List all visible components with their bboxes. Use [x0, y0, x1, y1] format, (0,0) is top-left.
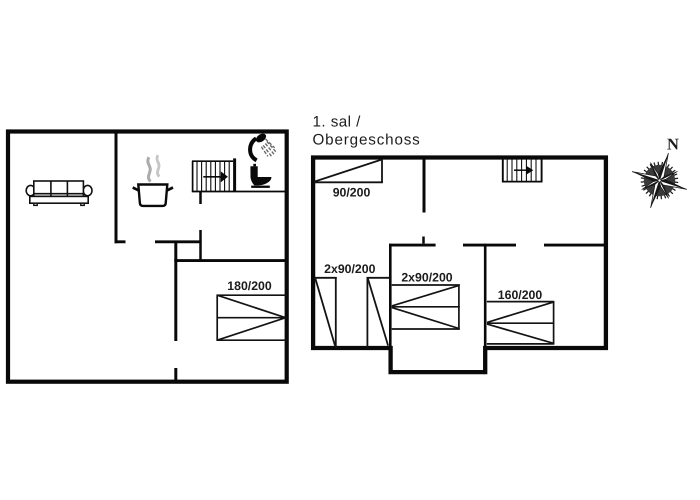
svg-text:1. sal /: 1. sal / [313, 114, 362, 131]
svg-text:90/200: 90/200 [333, 186, 371, 200]
svg-text:Obergeschoss: Obergeschoss [313, 131, 421, 148]
svg-text:180/200: 180/200 [227, 279, 272, 293]
svg-text:N: N [667, 134, 679, 153]
svg-text:2x90/200: 2x90/200 [324, 262, 375, 276]
svg-text:2x90/200: 2x90/200 [401, 270, 452, 284]
svg-text:160/200: 160/200 [498, 288, 543, 302]
